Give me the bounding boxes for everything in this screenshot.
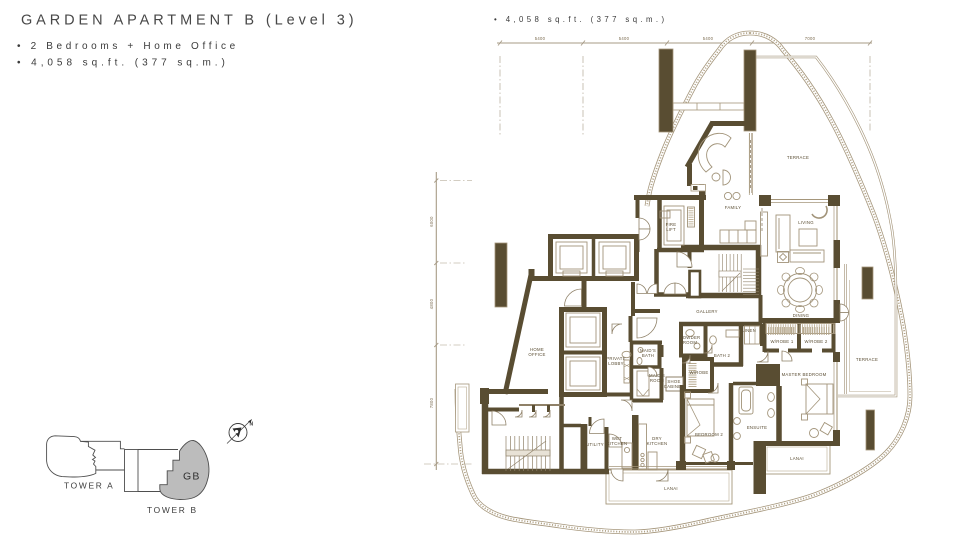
svg-text:• 4,058 sq.ft. (377 sq.m.): • 4,058 sq.ft. (377 sq.m.): [17, 58, 229, 69]
svg-text:W/ROBE: W/ROBE: [690, 370, 709, 375]
svg-text:5400: 5400: [535, 36, 546, 41]
svg-text:ROOM: ROOM: [650, 378, 665, 383]
svg-text:ENSUITE: ENSUITE: [747, 425, 767, 430]
svg-text:TERRACE: TERRACE: [856, 357, 878, 362]
svg-text:UTILITY: UTILITY: [586, 442, 604, 447]
svg-text:LINEN: LINEN: [742, 328, 756, 333]
svg-text:W/ROBE 2: W/ROBE 2: [804, 339, 827, 344]
svg-text:KITCHEN: KITCHEN: [647, 441, 668, 446]
svg-text:BEDROOM 2: BEDROOM 2: [695, 432, 723, 437]
svg-text:FAMILY: FAMILY: [725, 205, 741, 210]
svg-text:7800: 7800: [429, 397, 434, 408]
svg-text:ROOM: ROOM: [683, 340, 698, 345]
svg-text:5400: 5400: [619, 36, 630, 41]
svg-text:LIVING: LIVING: [798, 220, 814, 225]
svg-text:GALLERY: GALLERY: [696, 309, 718, 314]
svg-text:4800: 4800: [429, 298, 434, 309]
svg-text:• 2 Bedrooms + Home Office: • 2 Bedrooms + Home Office: [17, 41, 239, 52]
svg-text:TOWER B: TOWER B: [147, 505, 198, 515]
svg-text:BATH 2: BATH 2: [714, 353, 731, 358]
svg-text:7000: 7000: [805, 36, 816, 41]
svg-text:TOWER A: TOWER A: [64, 481, 114, 491]
svg-text:LOBBY: LOBBY: [608, 361, 624, 366]
svg-text:CABINET: CABINET: [664, 384, 684, 389]
svg-text:TERRACE: TERRACE: [787, 155, 809, 160]
svg-text:BATH: BATH: [642, 353, 654, 358]
svg-text:W/ROBE 1: W/ROBE 1: [770, 339, 793, 344]
svg-text:GARDEN APARTMENT B (Level 3): GARDEN APARTMENT B (Level 3): [21, 13, 357, 29]
svg-text:N: N: [250, 422, 254, 428]
svg-text:LANAI: LANAI: [790, 456, 804, 461]
svg-text:MASTER BEDROOM: MASTER BEDROOM: [782, 372, 827, 377]
svg-text:DINING: DINING: [793, 313, 810, 318]
svg-text:5400: 5400: [703, 36, 714, 41]
svg-text:LIFT: LIFT: [666, 227, 676, 232]
svg-text:• 4,058 sq.ft. (377 sq.m.): • 4,058 sq.ft. (377 sq.m.): [494, 15, 667, 24]
svg-text:KITCHEN: KITCHEN: [607, 441, 628, 446]
svg-text:GB: GB: [183, 471, 201, 483]
svg-text:OFFICE: OFFICE: [528, 352, 545, 357]
svg-text:LANAI: LANAI: [664, 486, 678, 491]
svg-text:6000: 6000: [429, 216, 434, 227]
